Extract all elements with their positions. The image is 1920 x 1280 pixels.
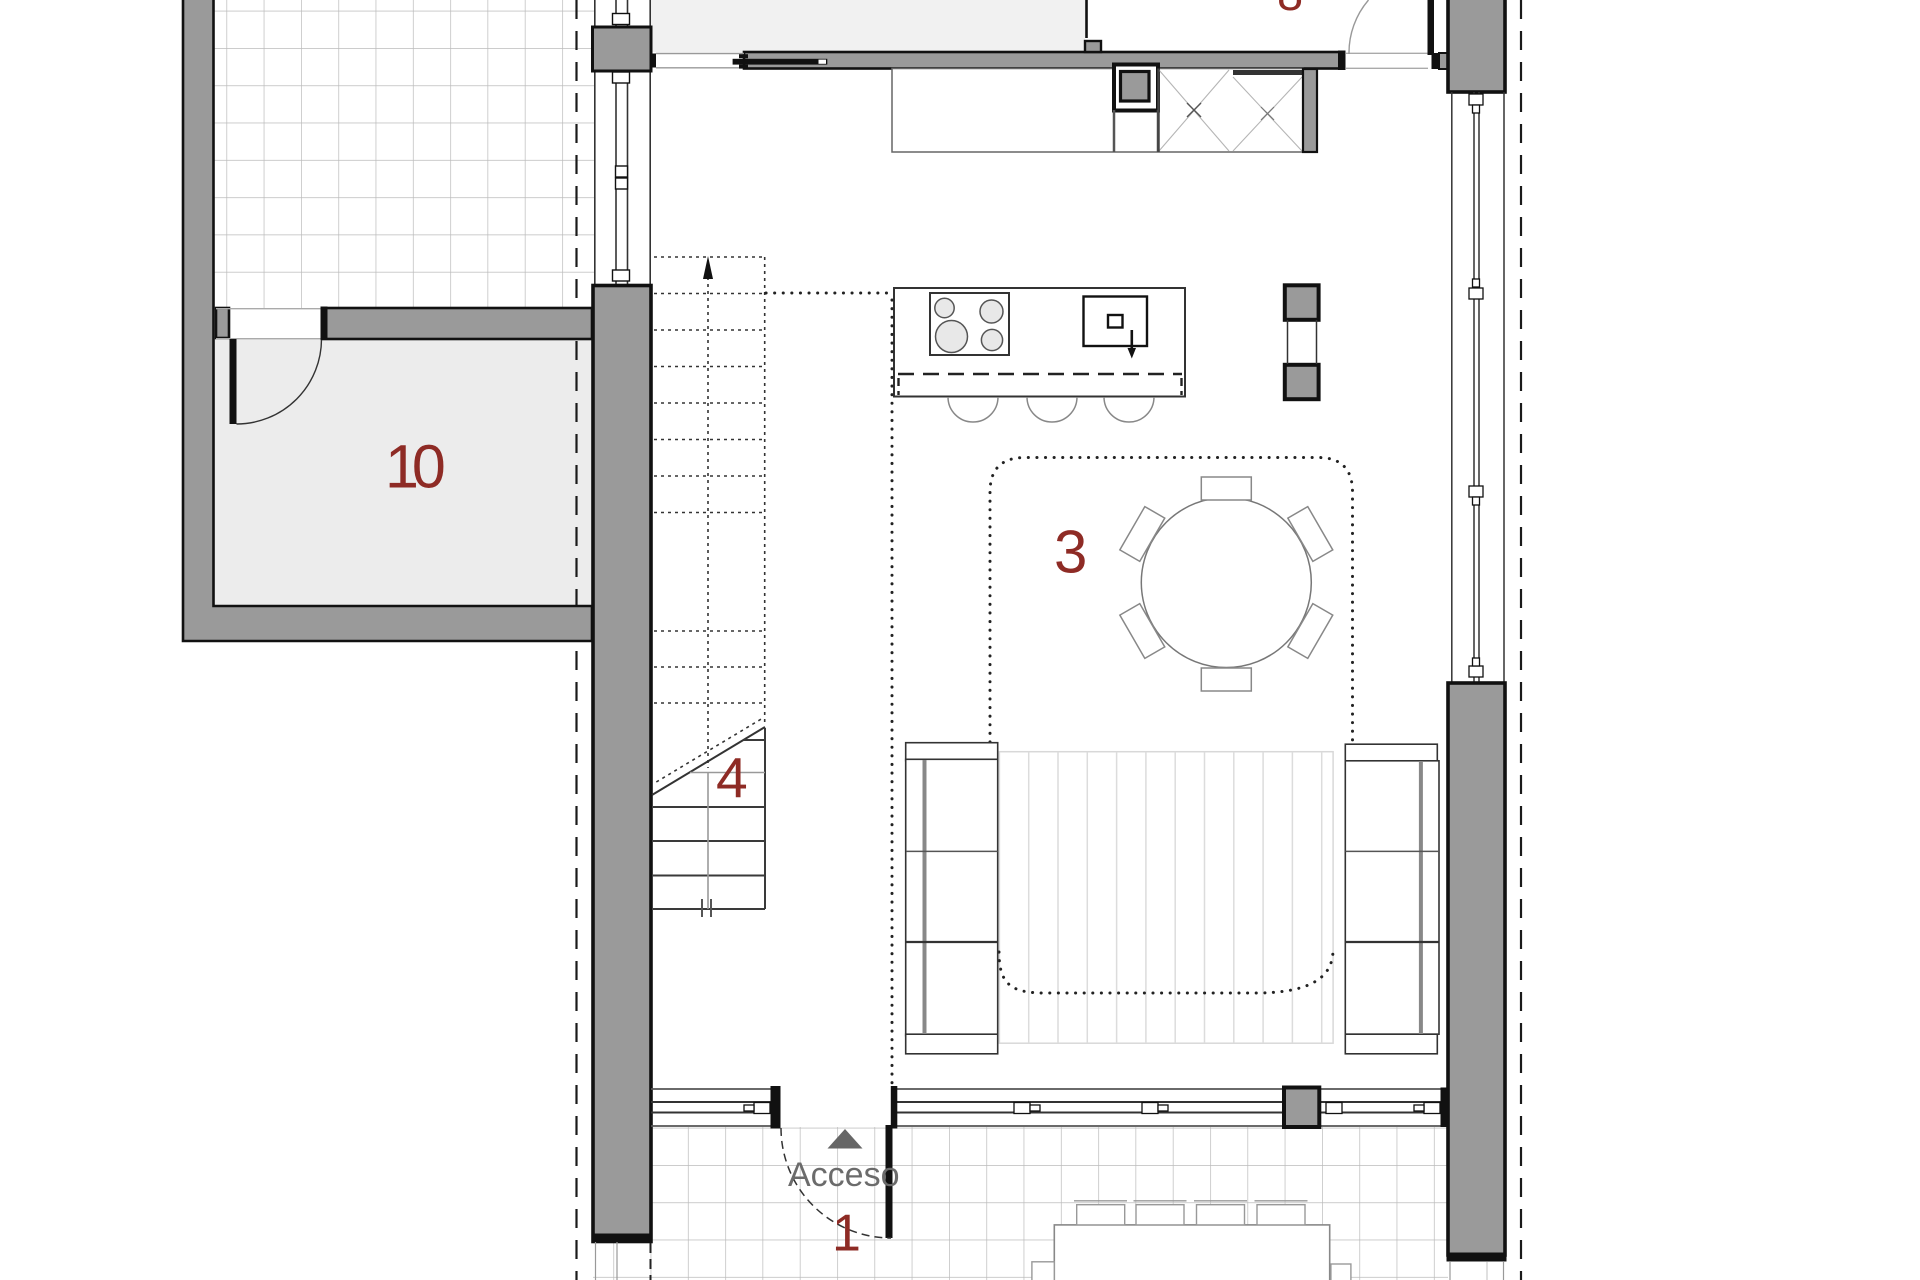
svg-text:8: 8 [1277,0,1303,20]
svg-text:Acceso: Acceso [788,1156,900,1194]
svg-text:1: 1 [832,1205,861,1263]
svg-text:4: 4 [716,747,748,811]
svg-text:10: 10 [385,433,444,501]
svg-text:3: 3 [1054,519,1087,586]
